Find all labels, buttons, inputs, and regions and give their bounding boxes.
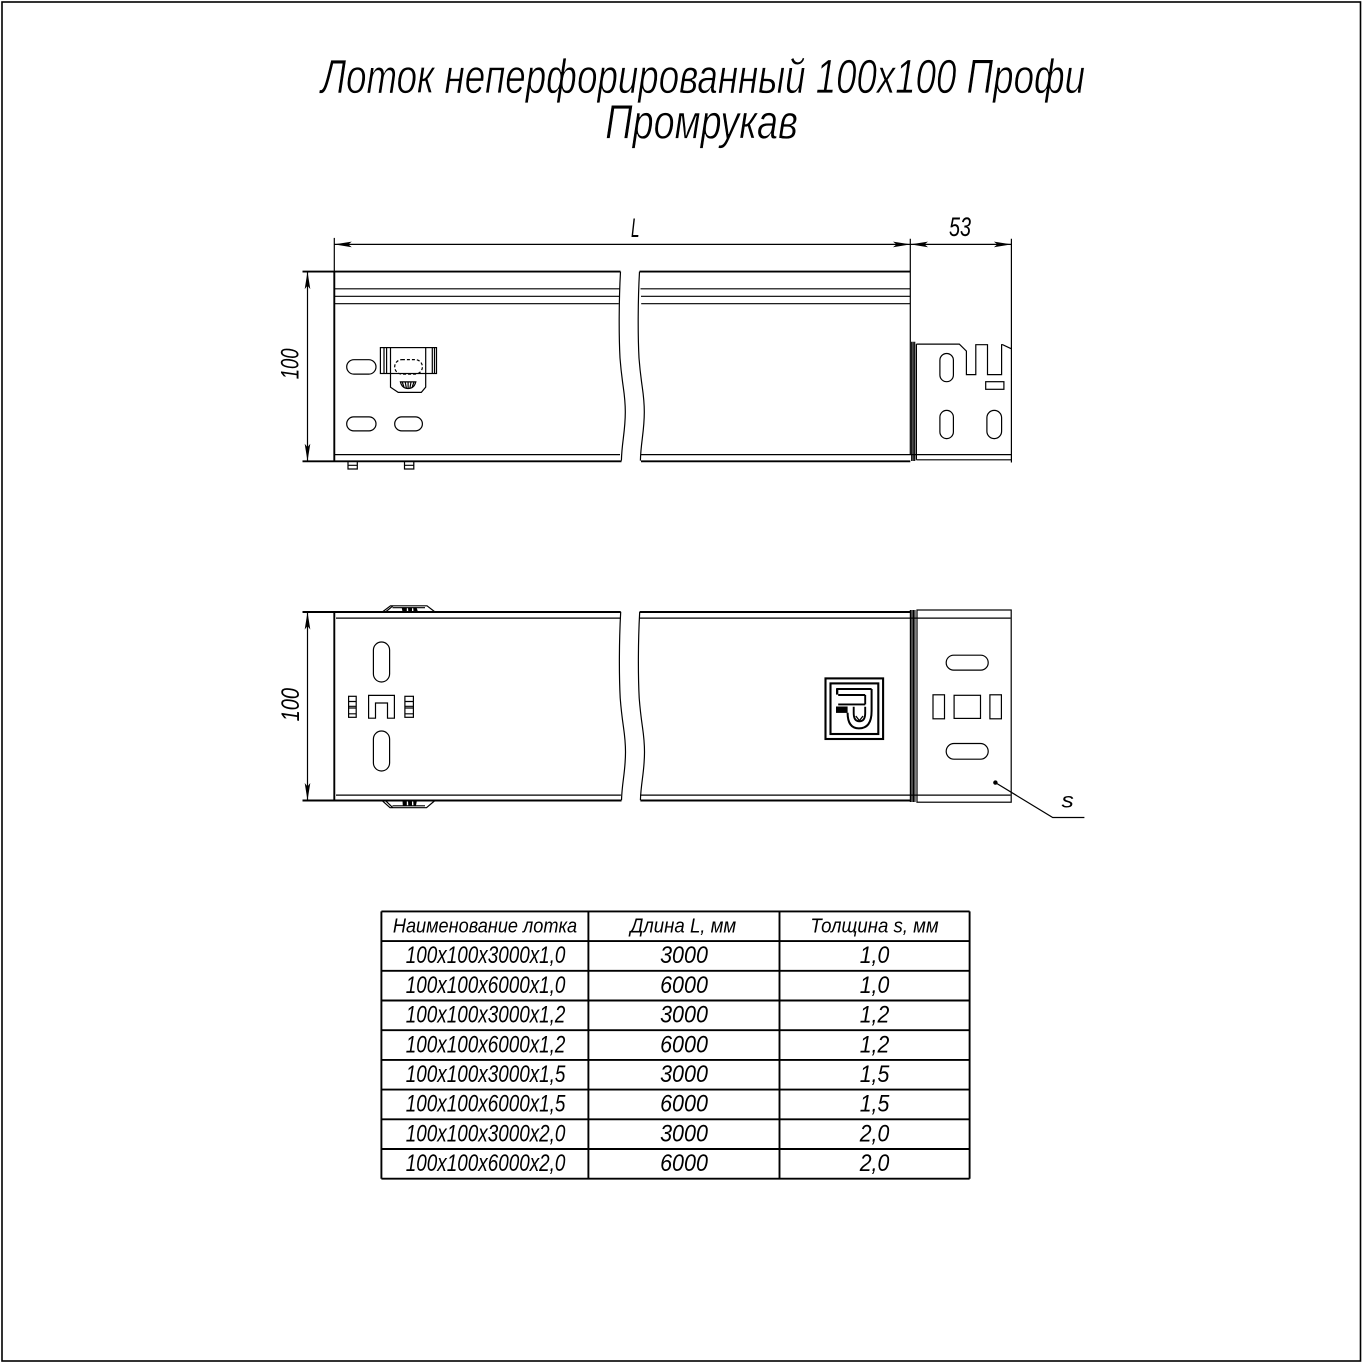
svg-text:L: L <box>631 213 640 243</box>
svg-text:3000: 3000 <box>660 1002 708 1029</box>
svg-text:6000: 6000 <box>660 972 708 999</box>
svg-text:100х100х6000х1,2: 100х100х6000х1,2 <box>406 1031 566 1058</box>
svg-text:3000: 3000 <box>660 942 708 969</box>
svg-text:100: 100 <box>278 688 305 722</box>
svg-text:Длина L, мм: Длина L, мм <box>628 916 736 938</box>
svg-text:1,0: 1,0 <box>860 942 890 969</box>
svg-text:53: 53 <box>949 212 971 242</box>
svg-text:Промрукав: Промрукав <box>605 96 798 150</box>
svg-text:100х100х3000х1,5: 100х100х3000х1,5 <box>406 1061 566 1088</box>
svg-text:1,5: 1,5 <box>860 1091 890 1118</box>
svg-text:Наименование лотка: Наименование лотка <box>393 916 577 938</box>
svg-text:1,2: 1,2 <box>860 1002 890 1029</box>
svg-text:6000: 6000 <box>660 1150 708 1177</box>
svg-text:100х100х6000х1,5: 100х100х6000х1,5 <box>406 1091 566 1118</box>
svg-text:100х100х3000х1,0: 100х100х3000х1,0 <box>406 942 566 969</box>
svg-text:100х100х3000х2,0: 100х100х3000х2,0 <box>406 1120 566 1147</box>
svg-text:6000: 6000 <box>660 1031 708 1058</box>
svg-text:2,0: 2,0 <box>859 1150 890 1177</box>
svg-text:100: 100 <box>278 348 305 379</box>
svg-text:6000: 6000 <box>660 1091 708 1118</box>
svg-text:Толщина s, мм: Толщина s, мм <box>810 916 938 938</box>
svg-text:2,0: 2,0 <box>859 1120 890 1147</box>
svg-text:3000: 3000 <box>660 1120 708 1147</box>
svg-text:s: s <box>1062 790 1074 813</box>
svg-text:100х100х3000х1,2: 100х100х3000х1,2 <box>406 1002 566 1029</box>
svg-text:1,2: 1,2 <box>860 1031 890 1058</box>
svg-text:1,0: 1,0 <box>860 972 890 999</box>
svg-text:3000: 3000 <box>660 1061 708 1088</box>
svg-text:100х100х6000х1,0: 100х100х6000х1,0 <box>406 972 566 999</box>
svg-text:1,5: 1,5 <box>860 1061 890 1088</box>
svg-text:100х100х6000х2,0: 100х100х6000х2,0 <box>406 1150 566 1177</box>
